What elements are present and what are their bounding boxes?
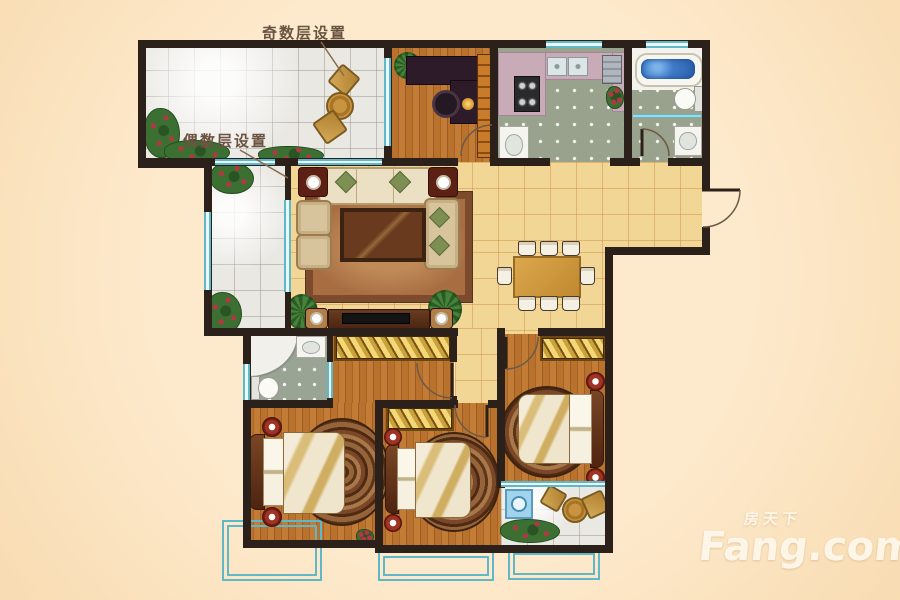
wall bbox=[285, 160, 291, 202]
sliding-door bbox=[298, 159, 382, 165]
wall bbox=[497, 545, 613, 553]
bedside-table bbox=[262, 417, 282, 437]
wall bbox=[375, 400, 458, 408]
basin bbox=[674, 126, 702, 156]
wall bbox=[490, 44, 498, 166]
wall bbox=[375, 545, 505, 553]
wall bbox=[538, 328, 605, 336]
desk-lamp-icon bbox=[462, 98, 474, 110]
plant-icon bbox=[500, 519, 560, 543]
office-chair bbox=[432, 90, 460, 118]
bookshelf bbox=[477, 54, 491, 158]
bed-headboard bbox=[590, 390, 604, 468]
wall bbox=[702, 40, 710, 190]
bed-blanket bbox=[415, 442, 471, 518]
wall bbox=[450, 332, 457, 362]
dining-table bbox=[513, 256, 581, 298]
bedside-table bbox=[262, 507, 282, 527]
door-arc-entry bbox=[703, 190, 740, 227]
bed-blanket bbox=[283, 432, 345, 514]
bed-pillows bbox=[263, 438, 285, 506]
coffee-table bbox=[340, 208, 426, 262]
sliding-door bbox=[327, 362, 333, 398]
wall bbox=[498, 158, 550, 166]
dining-chair bbox=[540, 241, 558, 256]
floor-plan-canvas: 奇数层设置 偶数层设置 房天下 Fang.com bbox=[0, 0, 900, 600]
dining-chair bbox=[540, 296, 558, 311]
wardrobe bbox=[386, 406, 454, 431]
bed-pillows bbox=[568, 394, 592, 464]
wall bbox=[243, 540, 383, 548]
wardrobe bbox=[334, 334, 452, 361]
lamp-side-table bbox=[428, 167, 458, 197]
bed-pillows bbox=[397, 448, 417, 510]
window bbox=[243, 364, 250, 400]
dining-chair bbox=[518, 296, 536, 311]
armchair bbox=[296, 234, 332, 270]
even-floor-label: 偶数层设置 bbox=[183, 130, 268, 151]
window bbox=[546, 41, 602, 48]
bathtub-water bbox=[641, 59, 695, 79]
armchair bbox=[296, 200, 332, 236]
bay-window-middle-bedroom bbox=[378, 551, 494, 581]
window bbox=[215, 159, 275, 165]
fang-watermark: 房天下 Fang.com bbox=[697, 508, 900, 565]
basin bbox=[296, 336, 326, 358]
window bbox=[204, 212, 211, 290]
sofa bbox=[318, 167, 436, 205]
fridge bbox=[602, 55, 622, 84]
gas-stove bbox=[514, 76, 540, 112]
fang-watermark-en: Fang.com bbox=[697, 529, 900, 565]
dining-chair bbox=[518, 241, 536, 256]
kitchen-sink bbox=[568, 57, 588, 76]
speaker-cabinet bbox=[430, 308, 453, 329]
washing-machine bbox=[505, 489, 533, 519]
window bbox=[646, 41, 688, 48]
bedside-table bbox=[384, 428, 402, 446]
wall bbox=[624, 44, 632, 166]
wall bbox=[497, 328, 505, 488]
bedside-table bbox=[384, 514, 402, 532]
window bbox=[384, 58, 391, 146]
wall bbox=[327, 332, 333, 362]
bay-window-master bbox=[222, 520, 322, 581]
tv bbox=[342, 313, 410, 324]
wall bbox=[610, 247, 710, 255]
speaker-cabinet bbox=[305, 308, 328, 329]
bed-blanket bbox=[518, 394, 570, 464]
wall bbox=[138, 40, 146, 168]
toilet-bowl bbox=[674, 88, 696, 110]
lamp-side-table bbox=[298, 167, 328, 197]
dining-chair bbox=[580, 267, 595, 285]
dining-chair bbox=[497, 267, 512, 285]
sliding-door bbox=[284, 200, 291, 292]
plant-icon bbox=[210, 162, 254, 194]
dining-chair bbox=[562, 296, 580, 311]
bedside-table bbox=[586, 372, 605, 391]
kitchen-sink bbox=[547, 57, 567, 76]
sliding-door bbox=[501, 481, 605, 487]
bathtub bbox=[635, 53, 703, 87]
glass-partition bbox=[633, 114, 701, 118]
wall bbox=[243, 400, 333, 408]
dining-chair bbox=[562, 241, 580, 256]
wall bbox=[605, 247, 613, 553]
toilet-bowl bbox=[258, 377, 279, 399]
odd-floor-label: 奇数层设置 bbox=[262, 22, 347, 43]
wall bbox=[243, 328, 251, 548]
plant-icon bbox=[606, 86, 624, 109]
wall bbox=[375, 400, 383, 548]
wardrobe bbox=[540, 336, 606, 361]
